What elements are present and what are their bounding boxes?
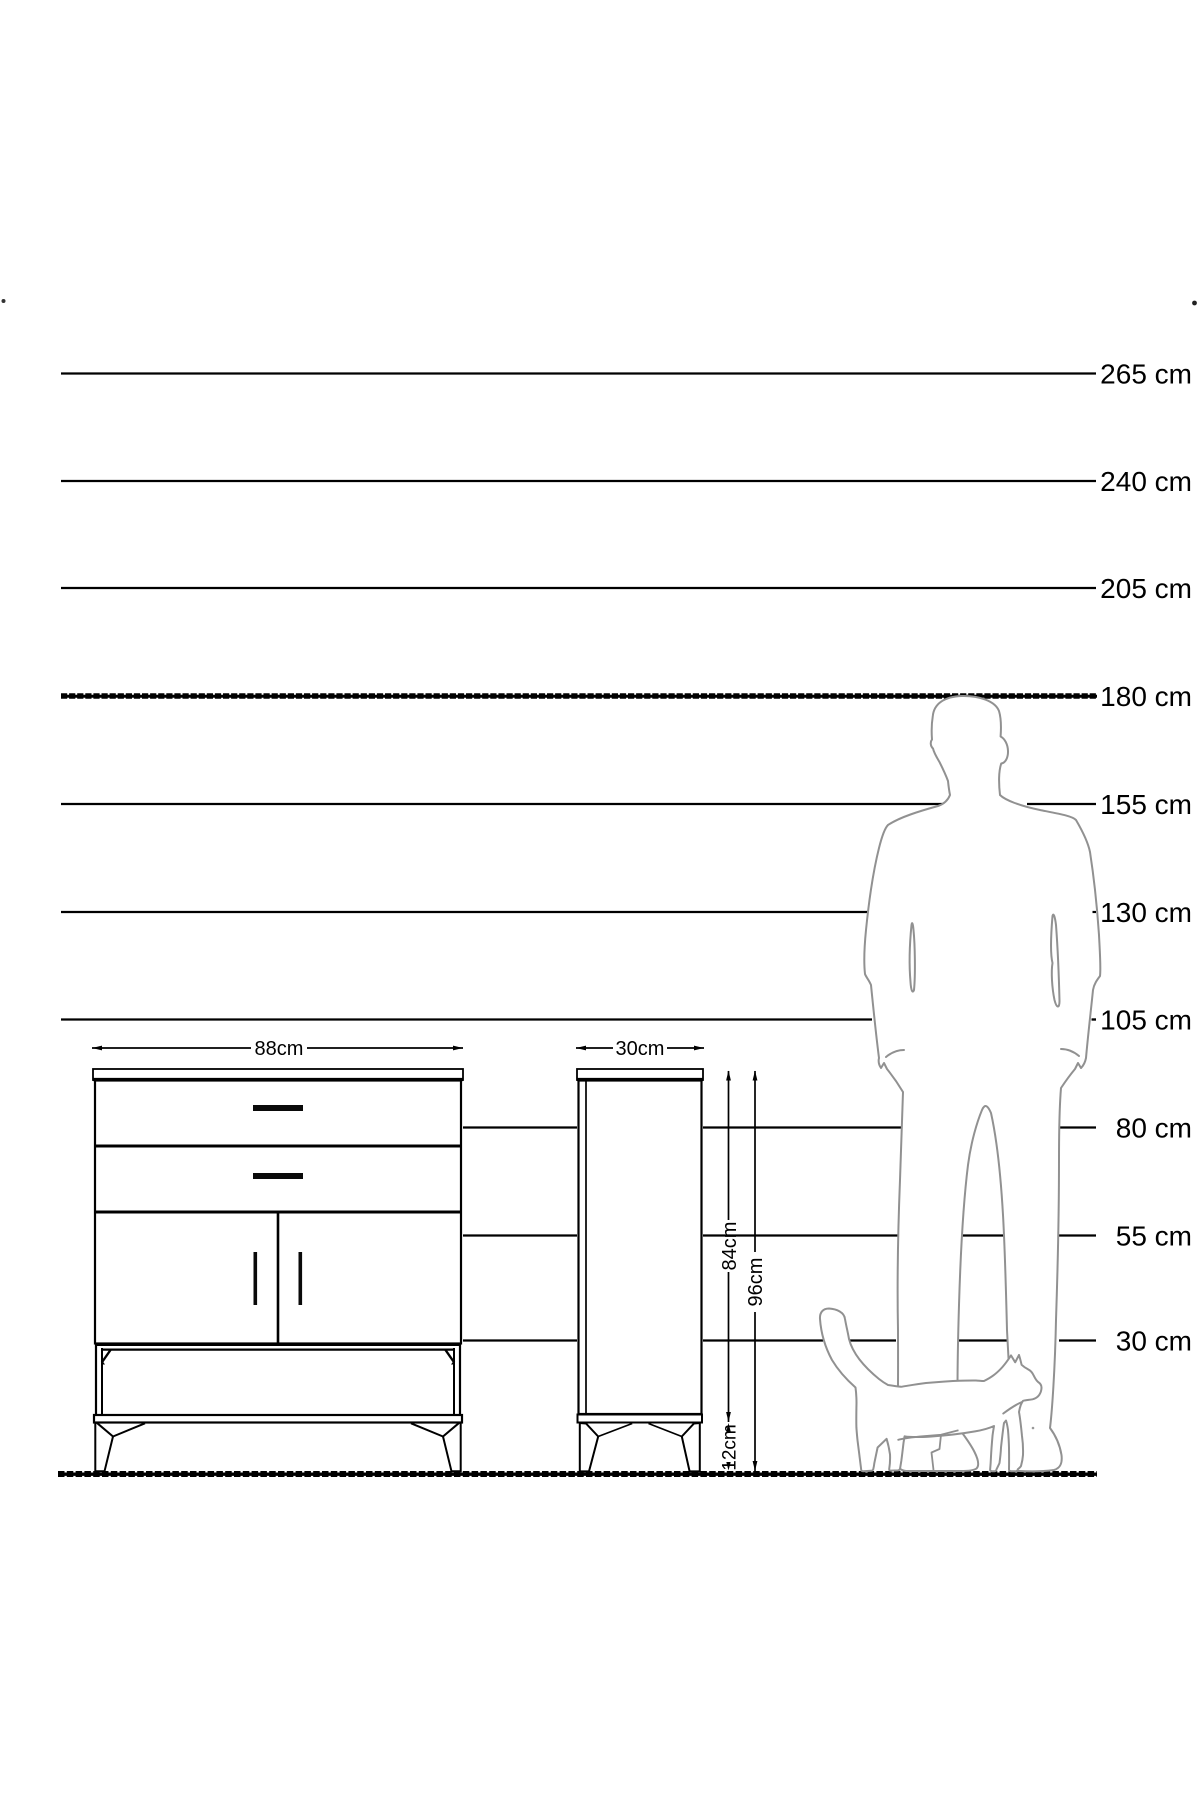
svg-text:155 cm: 155 cm: [1100, 789, 1192, 820]
svg-text:180 cm: 180 cm: [1100, 681, 1192, 712]
svg-text:12cm: 12cm: [720, 1424, 741, 1470]
svg-text:96cm: 96cm: [745, 1258, 767, 1307]
svg-text:205 cm: 205 cm: [1100, 573, 1192, 604]
svg-text:130 cm: 130 cm: [1100, 897, 1192, 928]
svg-text:30 cm: 30 cm: [1116, 1326, 1192, 1357]
svg-text:105 cm: 105 cm: [1100, 1005, 1192, 1036]
svg-text:80 cm: 80 cm: [1116, 1113, 1192, 1144]
svg-text:55 cm: 55 cm: [1116, 1221, 1192, 1252]
svg-text:265 cm: 265 cm: [1100, 359, 1192, 390]
svg-text:30cm: 30cm: [616, 1038, 665, 1060]
svg-text:84cm: 84cm: [719, 1222, 741, 1271]
svg-text:88cm: 88cm: [255, 1038, 304, 1060]
svg-text:240 cm: 240 cm: [1100, 466, 1192, 497]
